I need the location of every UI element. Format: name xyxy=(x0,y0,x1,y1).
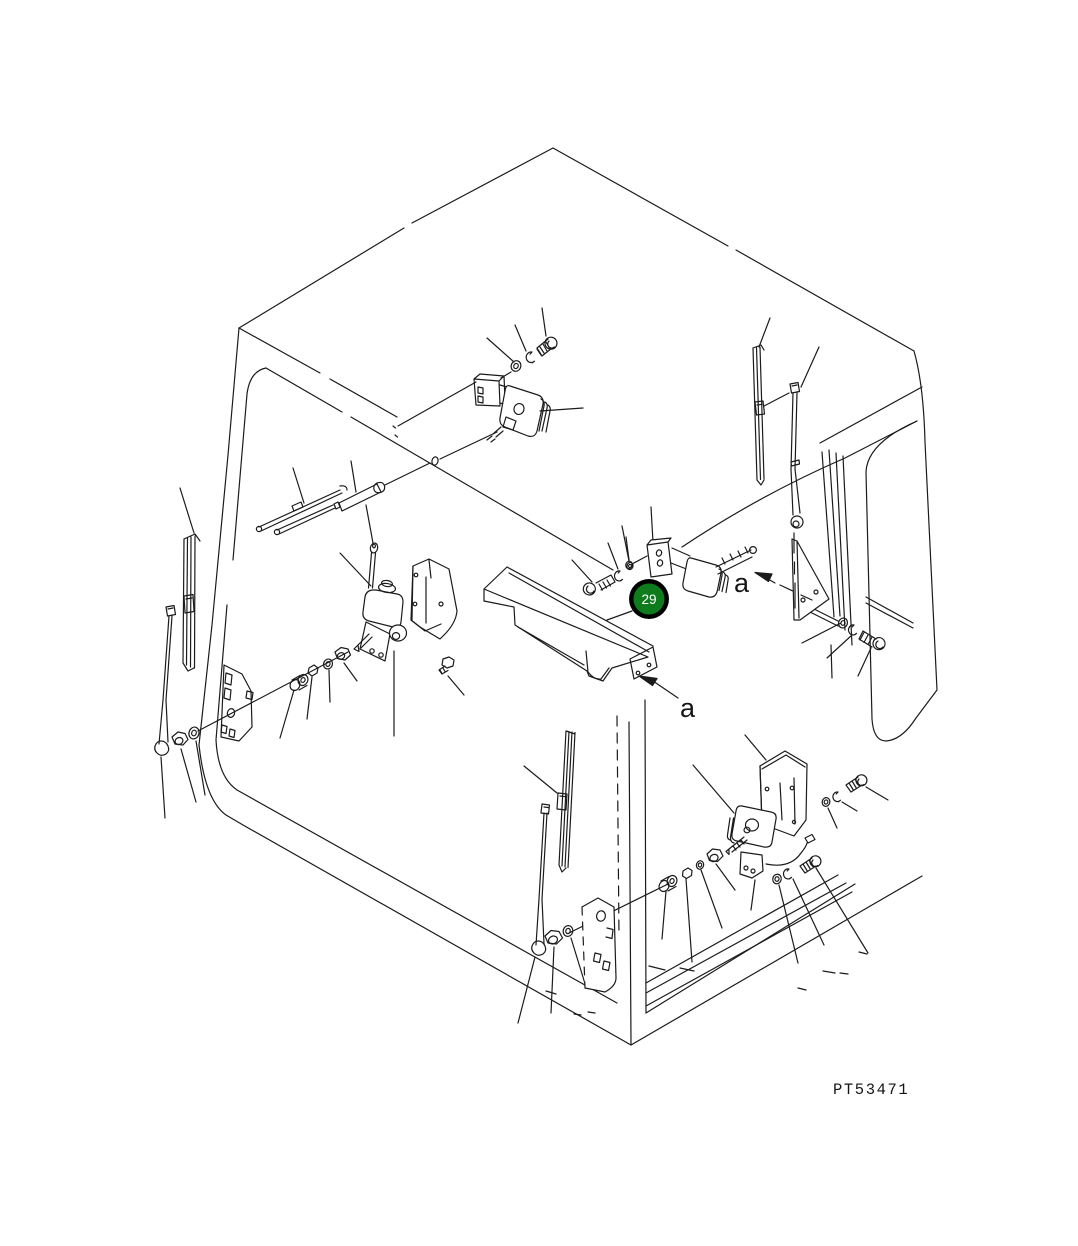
svg-text:PT53471: PT53471 xyxy=(833,1081,909,1099)
svg-text:29: 29 xyxy=(641,592,656,607)
svg-text:a: a xyxy=(680,693,696,723)
svg-text:a: a xyxy=(734,568,750,598)
